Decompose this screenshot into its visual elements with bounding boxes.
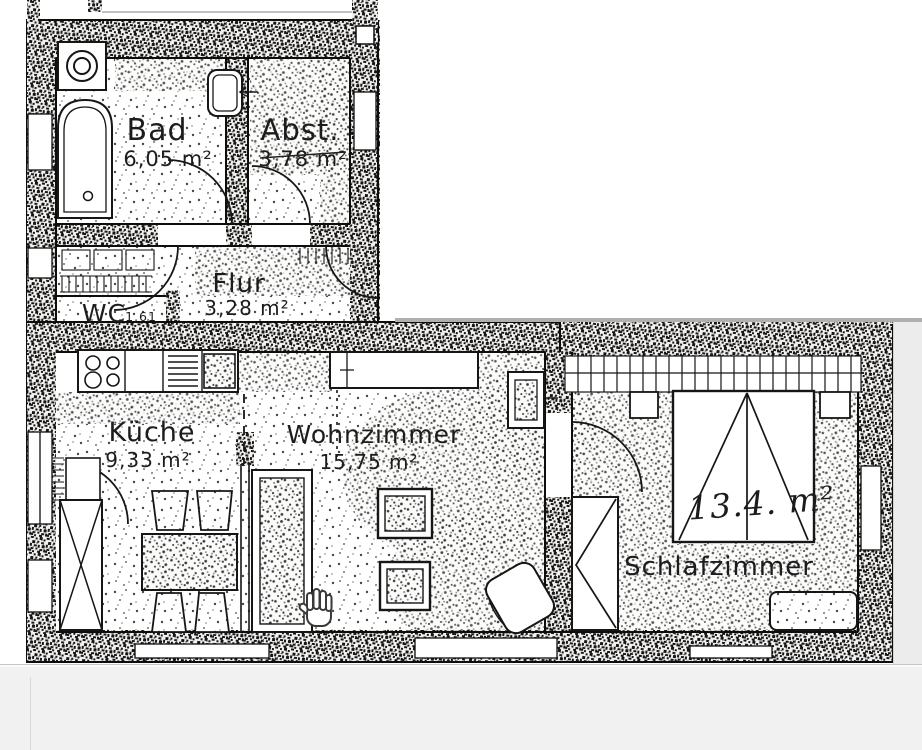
room-area-kueche: 9,33 m² [105, 448, 190, 472]
room-label-abst: Abst. [261, 113, 340, 147]
room-label-kueche: Küche [108, 417, 195, 448]
room-label-bad: Bad [126, 113, 187, 148]
wall-pier-right [820, 392, 850, 418]
wardrobe [572, 497, 618, 630]
washing-machine [58, 42, 106, 90]
room-label-flur: Flur [212, 269, 265, 299]
kitchen-sink [204, 354, 235, 388]
room-label-wc: WC [82, 299, 126, 328]
room-label-wohnzimmer: Wohnzimmer [287, 420, 462, 449]
right-page-margin [893, 322, 922, 664]
bottom-panel [0, 664, 922, 750]
floor-plan-viewer: Bad 6,05 m² Abst. 3,78 m² Flur 3,28 m² W… [0, 0, 922, 750]
room-area-bad: 6,05 m² [123, 147, 212, 171]
window-band [565, 356, 861, 392]
panel-divider-line [30, 677, 31, 750]
room-area-abst: 3,78 m² [258, 147, 347, 171]
floor-plan-drawing: Bad 6,05 m² Abst. 3,78 m² Flur 3,28 m² W… [0, 0, 922, 664]
room-area-wohnzimmer: 15,75 m² [319, 450, 418, 474]
room-area-wc: 1,61 [125, 309, 157, 324]
scan-seam-line [395, 318, 922, 322]
room-area-flur: 3,28 m² [204, 296, 289, 320]
bedroom-bench [770, 592, 857, 630]
floor-plan-image[interactable]: Bad 6,05 m² Abst. 3,78 m² Flur 3,28 m² W… [0, 0, 922, 664]
wall-pier-left [630, 392, 658, 418]
kitchen-table [142, 534, 237, 590]
room-label-schlafzimmer: Schlafzimmer [624, 552, 814, 582]
